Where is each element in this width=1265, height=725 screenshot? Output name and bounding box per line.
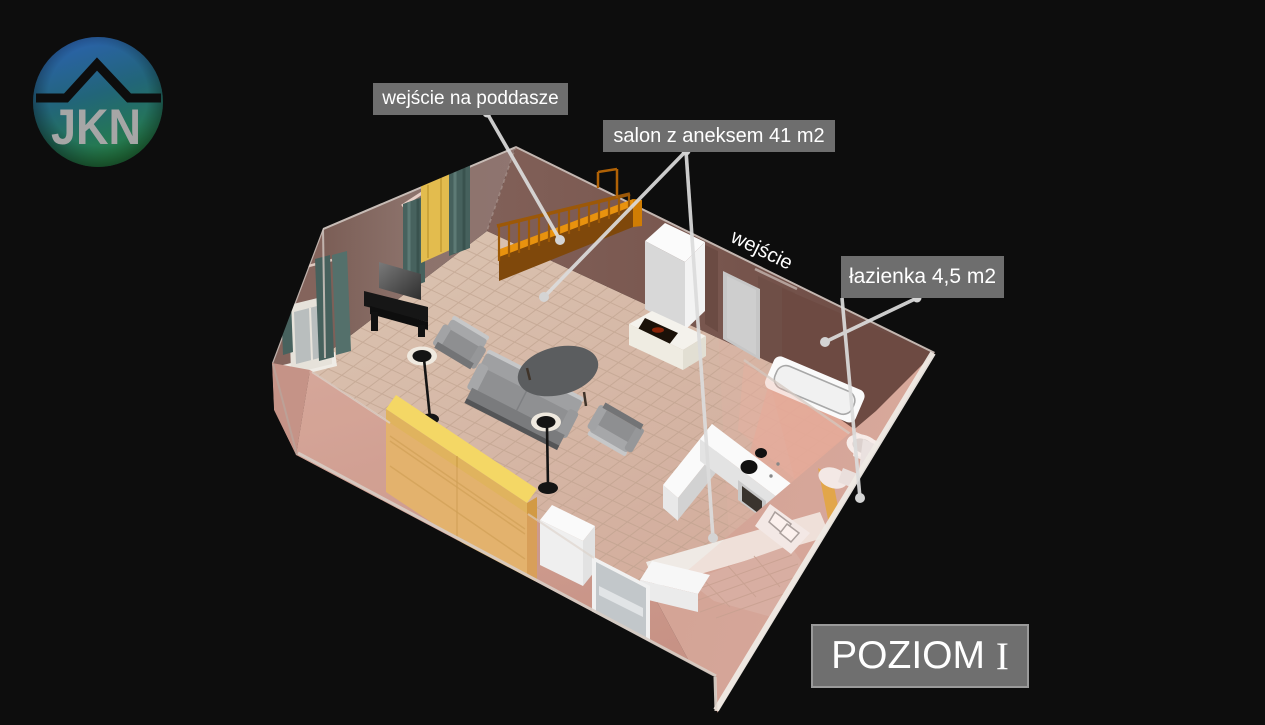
svg-text:JKN: JKN <box>51 99 141 155</box>
